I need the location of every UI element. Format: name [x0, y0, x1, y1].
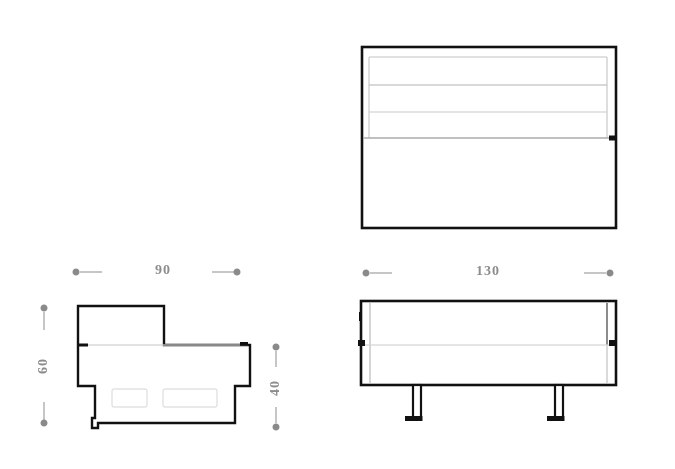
front-view-leg-right-foot	[547, 416, 565, 421]
side-view-right-seat-tick	[240, 342, 248, 346]
side-view-drawing	[68, 298, 280, 434]
side-view-outline	[78, 306, 250, 428]
front-view-leg-right	[555, 385, 563, 418]
dim-130-left-dot	[363, 270, 370, 277]
technical-drawing-canvas: 90 130 60 40	[0, 0, 675, 469]
dim-90-right-line	[212, 271, 234, 273]
front-view-leg-left-foot	[405, 416, 423, 421]
dim-60-bottom-line	[43, 402, 45, 420]
front-view-drawing	[356, 296, 622, 432]
dim-90-right-dot	[234, 269, 241, 276]
dim-40-top-dot	[273, 344, 280, 351]
top-view-right-edge-tick	[609, 136, 616, 141]
dim-130-label: 130	[476, 264, 500, 280]
front-view-left-edge-tick	[358, 340, 365, 346]
dim-130-left-line	[370, 272, 392, 274]
dim-40-bottom-line	[275, 407, 277, 423]
dim-40-label: 40	[268, 380, 284, 396]
front-view-right-edge-tick	[609, 340, 616, 346]
top-view-drawing	[358, 43, 622, 233]
dim-130-right-line	[584, 272, 606, 274]
dim-60-bottom-dot	[41, 420, 48, 427]
dim-90-left-line	[80, 271, 102, 273]
dim-90-label: 90	[155, 263, 171, 279]
side-view-left-seat-tick	[78, 344, 88, 347]
front-view-leg-left	[413, 385, 421, 418]
dim-40-bottom-dot	[273, 424, 280, 431]
dim-90-left-dot	[73, 269, 80, 276]
dim-60-top-line	[43, 312, 45, 330]
dim-60-label: 60	[36, 358, 52, 374]
dim-130-right-dot	[607, 270, 614, 277]
dim-40-top-line	[275, 351, 277, 367]
front-view-outline	[361, 301, 616, 385]
dim-60-top-dot	[41, 305, 48, 312]
front-view-left-edge-dash	[359, 312, 362, 321]
